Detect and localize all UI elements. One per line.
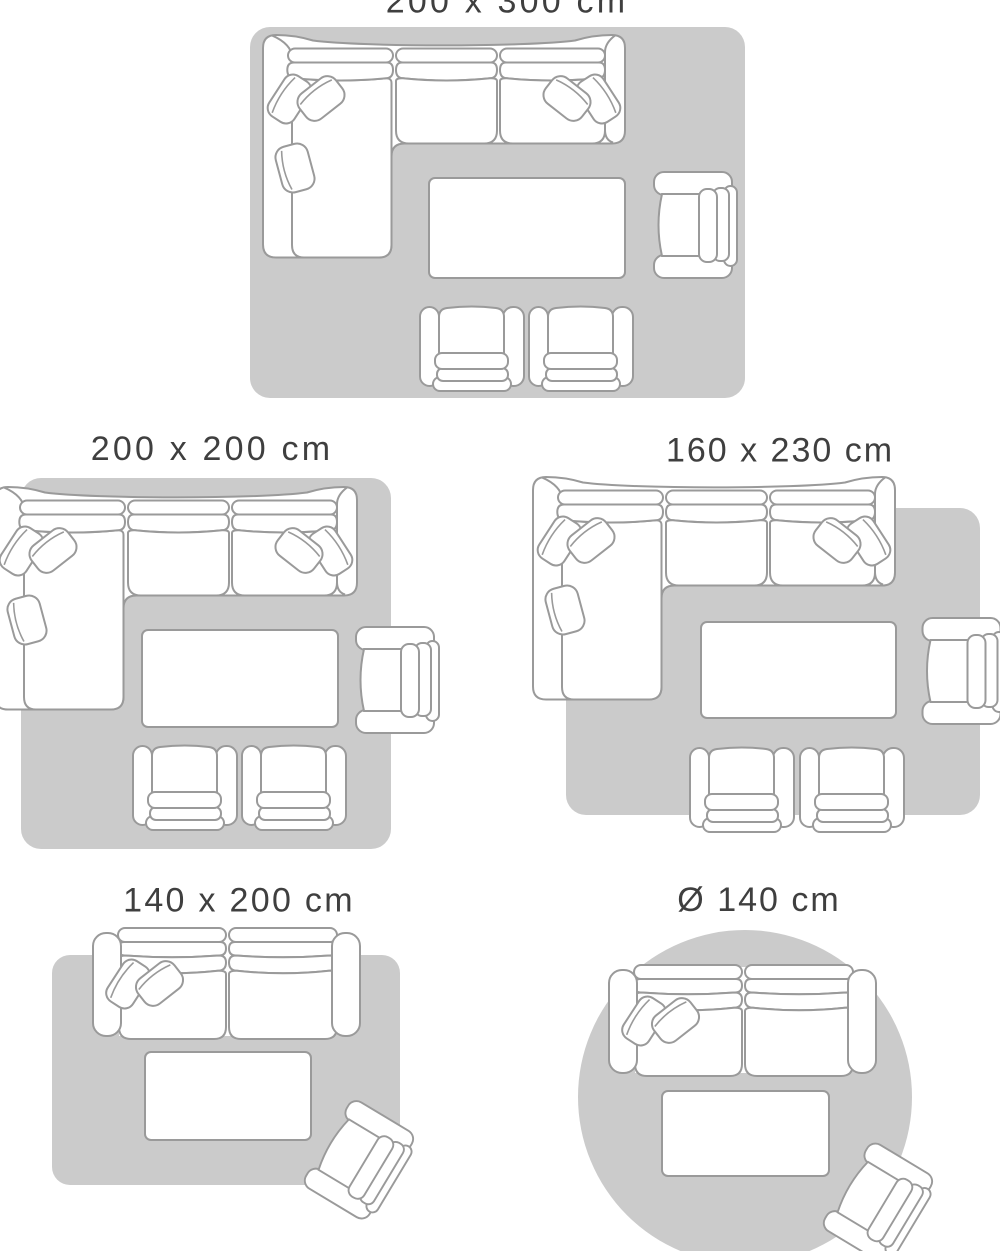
svg-text:200 x 300 cm: 200 x 300 cm <box>386 0 629 21</box>
svg-text:200 x 200 cm: 200 x 200 cm <box>91 430 334 468</box>
svg-text:140 x 200 cm: 140 x 200 cm <box>123 882 355 920</box>
svg-text:Ø 140 cm: Ø 140 cm <box>677 881 840 919</box>
svg-text:160 x 230 cm: 160 x 230 cm <box>666 432 894 470</box>
